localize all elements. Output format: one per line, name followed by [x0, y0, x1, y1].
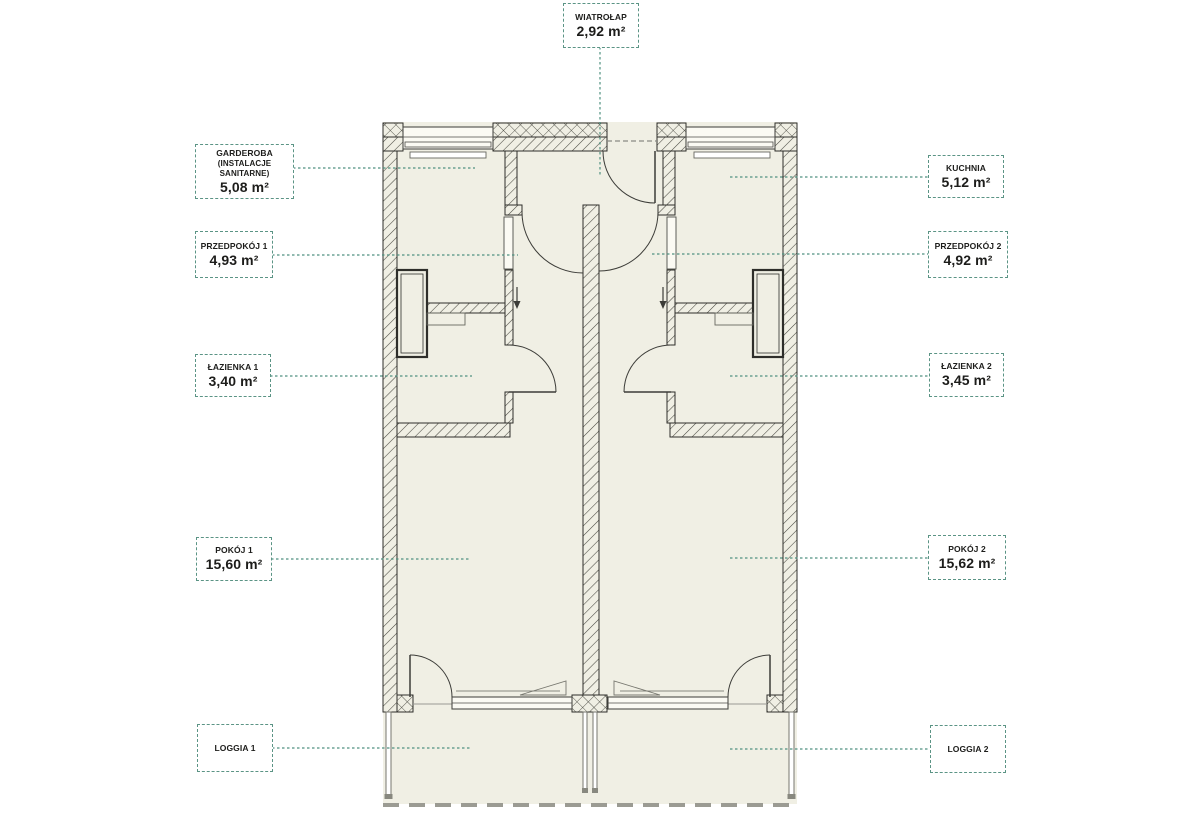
- room-label-lazienka-1: ŁAZIENKA 1 3,40 m²: [195, 354, 271, 397]
- shaft-instalacje-1: [397, 270, 427, 357]
- room-area: 15,62 m²: [939, 556, 996, 571]
- room-label-przedpokoj-1: PRZEDPOKÓJ 1 4,93 m²: [195, 231, 273, 278]
- room-label-loggia-1: LOGGIA 1: [197, 724, 273, 772]
- room-name: PRZEDPOKÓJ 2: [935, 241, 1002, 252]
- room-label-garderoba: GARDEROBA (INSTALACJE SANITARNE) 5,08 m²: [195, 144, 294, 199]
- room-area: 3,45 m²: [942, 373, 991, 388]
- room-label-loggia-2: LOGGIA 2: [930, 725, 1006, 773]
- radiator-kuchnia: [694, 152, 770, 158]
- window-kuchnia: [686, 127, 775, 149]
- room-name: POKÓJ 1: [215, 545, 253, 556]
- room-area: 4,93 m²: [210, 253, 259, 268]
- floor-plan-drawing: [0, 0, 1200, 813]
- room-label-przedpokoj-2: PRZEDPOKÓJ 2 4,92 m²: [928, 231, 1008, 278]
- room-name: LOGGIA 2: [947, 744, 988, 755]
- room-label-pokoj-2: POKÓJ 2 15,62 m²: [928, 535, 1006, 580]
- shaft-instalacje-2: [753, 270, 783, 357]
- room-name: POKÓJ 2: [948, 544, 986, 555]
- window-garderoba: [403, 127, 493, 149]
- room-label-pokoj-1: POKÓJ 1 15,60 m²: [196, 537, 272, 581]
- room-label-kuchnia: KUCHNIA 5,12 m²: [928, 155, 1004, 198]
- room-area: 5,08 m²: [220, 180, 269, 195]
- door-garderoba-1: [504, 217, 513, 269]
- room-label-lazienka-2: ŁAZIENKA 2 3,45 m²: [929, 353, 1004, 397]
- room-name: WIATROŁAP: [575, 12, 627, 23]
- room-name: LOGGIA 1: [214, 743, 255, 754]
- room-name: ŁAZIENKA 1: [208, 362, 259, 373]
- radiator-garderoba: [410, 152, 486, 158]
- central-wall: [583, 205, 599, 695]
- floor-plan-page: WIATROŁAP 2,92 m² GARDEROBA (INSTALACJE …: [0, 0, 1200, 813]
- room-name: KUCHNIA: [946, 163, 986, 174]
- room-label-wiatrolap: WIATROŁAP 2,92 m²: [563, 3, 639, 48]
- room-name-line2: (INSTALACJE SANITARNE): [198, 159, 291, 179]
- room-area: 3,40 m²: [209, 374, 258, 389]
- room-area: 2,92 m²: [577, 24, 626, 39]
- room-name: GARDEROBA: [216, 148, 273, 159]
- room-name: ŁAZIENKA 2: [941, 361, 992, 372]
- room-area: 4,92 m²: [944, 253, 993, 268]
- room-area: 15,60 m²: [206, 557, 263, 572]
- door-kuchnia-2: [667, 217, 676, 269]
- room-area: 5,12 m²: [942, 175, 991, 190]
- room-name: PRZEDPOKÓJ 1: [201, 241, 268, 252]
